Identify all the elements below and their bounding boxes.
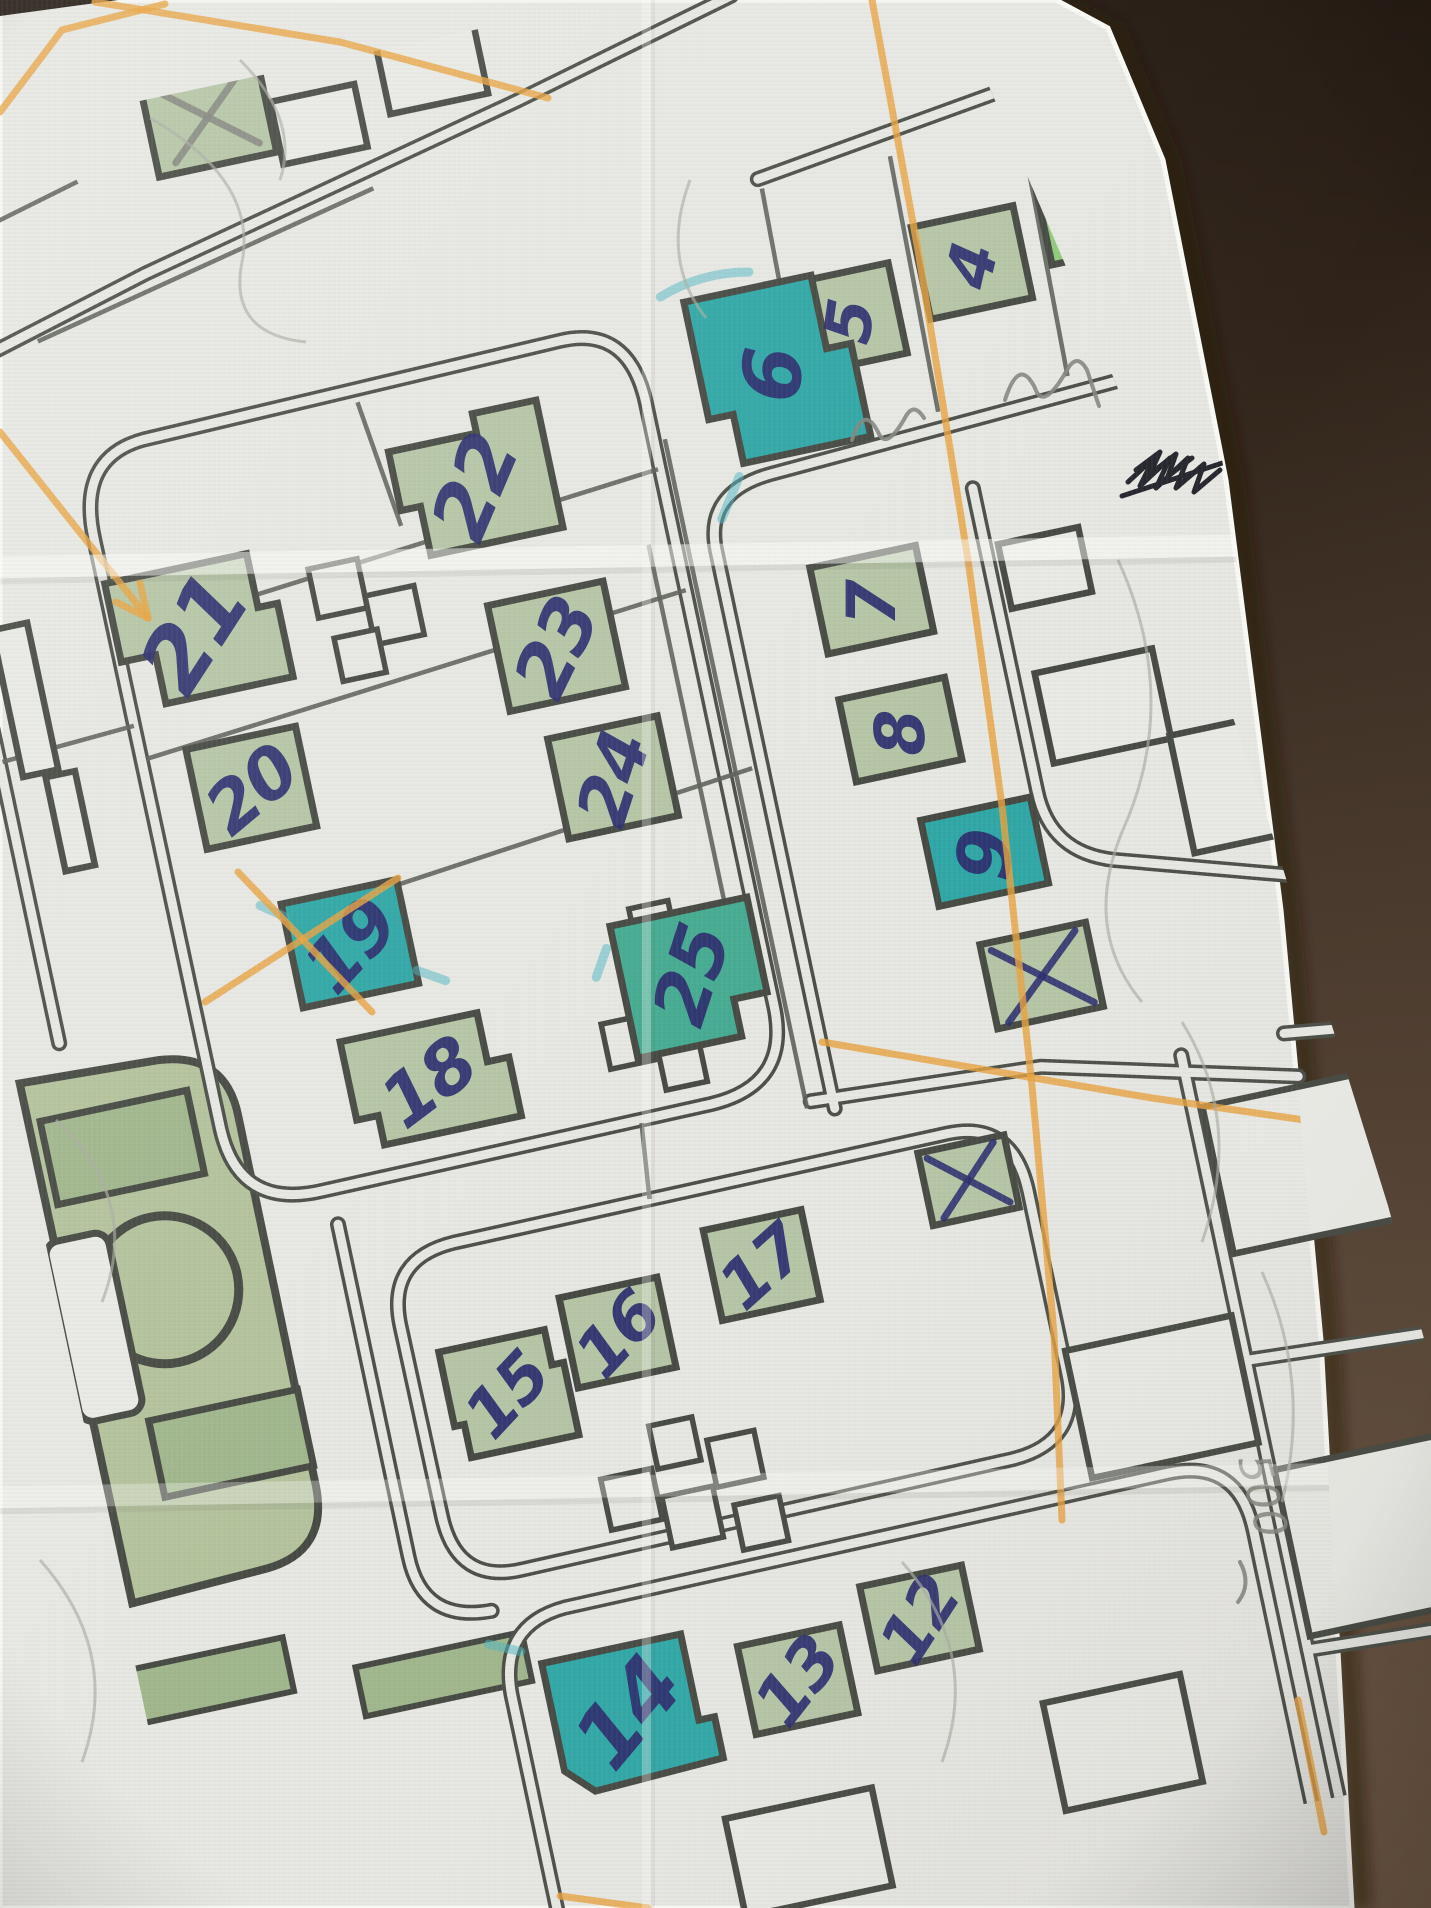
photo-vignette [0,0,1431,1908]
map-photo-canvas: 34567892221232024192518171615121314500 [0,0,1431,1908]
map-photo: 34567892221232024192518171615121314500 [0,0,1431,1908]
